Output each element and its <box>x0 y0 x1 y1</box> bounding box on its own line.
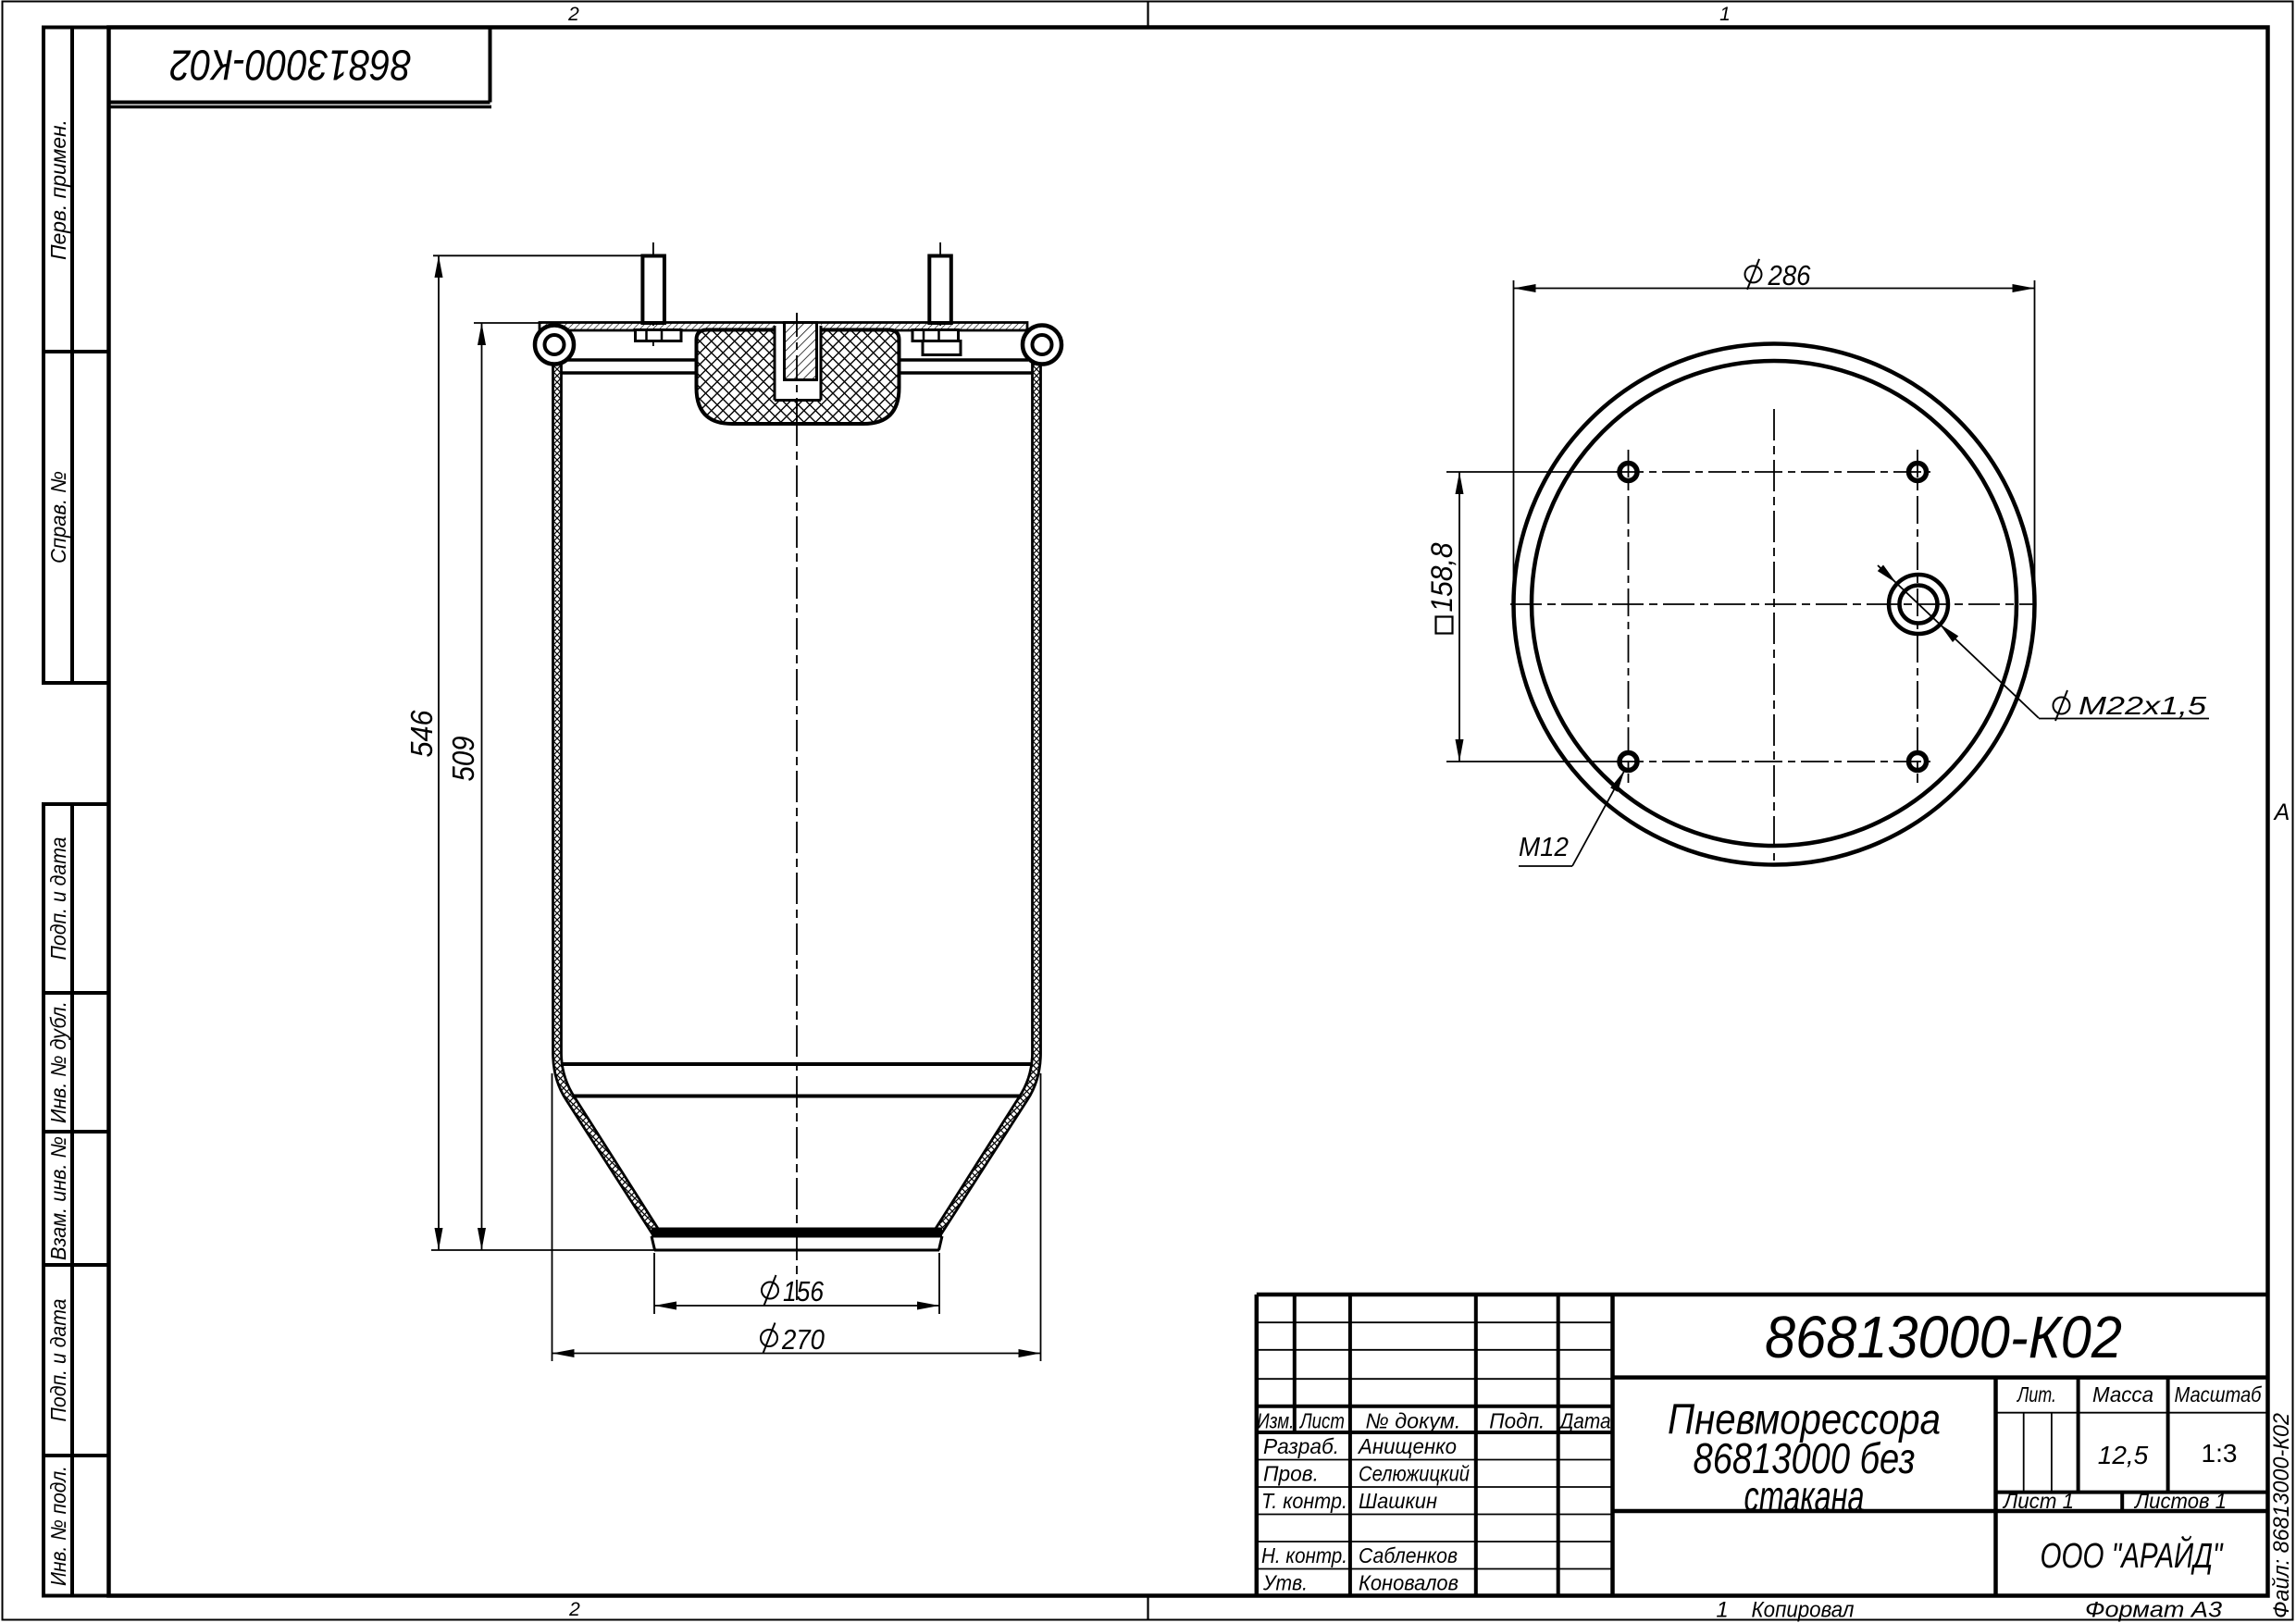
svg-text:86813000-К02: 86813000-К02 <box>170 42 412 90</box>
svg-text:286: 286 <box>1768 259 1812 291</box>
svg-text:Перв. примен.: Перв. примен. <box>46 119 70 260</box>
svg-text:12,5: 12,5 <box>2098 1441 2149 1469</box>
svg-text:Утв.: Утв. <box>1262 1571 1308 1595</box>
svg-text:509: 509 <box>446 737 480 782</box>
svg-text:156: 156 <box>783 1275 825 1307</box>
svg-text:А: А <box>2273 799 2290 825</box>
svg-text:Справ. №: Справ. № <box>46 471 70 564</box>
svg-text:Подп. и дата: Подп. и дата <box>46 837 70 960</box>
svg-text:Шашкин: Шашкин <box>1359 1489 1437 1513</box>
svg-text:2: 2 <box>567 4 579 25</box>
svg-text:Пров.: Пров. <box>1263 1462 1319 1486</box>
svg-text:2: 2 <box>568 1599 580 1620</box>
svg-text:Листов 1: Листов 1 <box>2133 1489 2227 1513</box>
svg-text:Сабленков: Сабленков <box>1359 1543 1458 1567</box>
svg-text:Файл: 86813000-К02: Файл: 86813000-К02 <box>2269 1413 2294 1618</box>
svg-text:Формат А3: Формат А3 <box>2085 1598 2223 1623</box>
svg-text:Анищенко: Анищенко <box>1357 1434 1457 1458</box>
svg-text:Т. контр.: Т. контр. <box>1261 1489 1347 1513</box>
svg-text:158,8: 158,8 <box>1425 542 1458 612</box>
svg-text:Н. контр.: Н. контр. <box>1261 1543 1347 1567</box>
svg-text:М12: М12 <box>1519 833 1569 862</box>
svg-text:Лит.: Лит. <box>2016 1382 2056 1406</box>
svg-text:Инв. № подл.: Инв. № подл. <box>46 1466 70 1586</box>
svg-text:Дата: Дата <box>1558 1409 1611 1433</box>
svg-text:270: 270 <box>781 1323 825 1356</box>
svg-text:Селюжицкий: Селюжицкий <box>1359 1462 1470 1486</box>
svg-text:Разраб.: Разраб. <box>1263 1434 1339 1458</box>
svg-text:Подп. и дата: Подп. и дата <box>46 1299 70 1422</box>
svg-text:Масштаб: Масштаб <box>2175 1382 2263 1406</box>
svg-text:Изм.: Изм. <box>1257 1409 1294 1433</box>
svg-text:Копировал: Копировал <box>1752 1598 1855 1623</box>
svg-text:546: 546 <box>404 710 439 758</box>
svg-text:1: 1 <box>1716 1598 1728 1623</box>
svg-text:ООО "АРАЙД": ООО "АРАЙД" <box>2041 1535 2224 1576</box>
svg-text:Взам. инв. №: Взам. инв. № <box>46 1136 70 1260</box>
svg-text:Масса: Масса <box>2092 1382 2153 1406</box>
svg-text:Инв. № дубл.: Инв. № дубл. <box>46 1001 70 1123</box>
svg-text:Лист: Лист <box>1298 1409 1345 1433</box>
svg-text:86813000-К02: 86813000-К02 <box>1765 1304 2122 1370</box>
svg-text:Лист 1: Лист 1 <box>2002 1489 2074 1513</box>
svg-text:1:3: 1:3 <box>2202 1439 2238 1468</box>
svg-text:№ докум.: № докум. <box>1365 1409 1460 1433</box>
svg-text:1: 1 <box>1719 4 1731 25</box>
svg-text:М22х1,5: М22х1,5 <box>2079 691 2207 720</box>
svg-text:Подп.: Подп. <box>1489 1409 1545 1433</box>
svg-text:стакана: стакана <box>1744 1472 1865 1520</box>
svg-text:Коновалов: Коновалов <box>1359 1571 1458 1595</box>
